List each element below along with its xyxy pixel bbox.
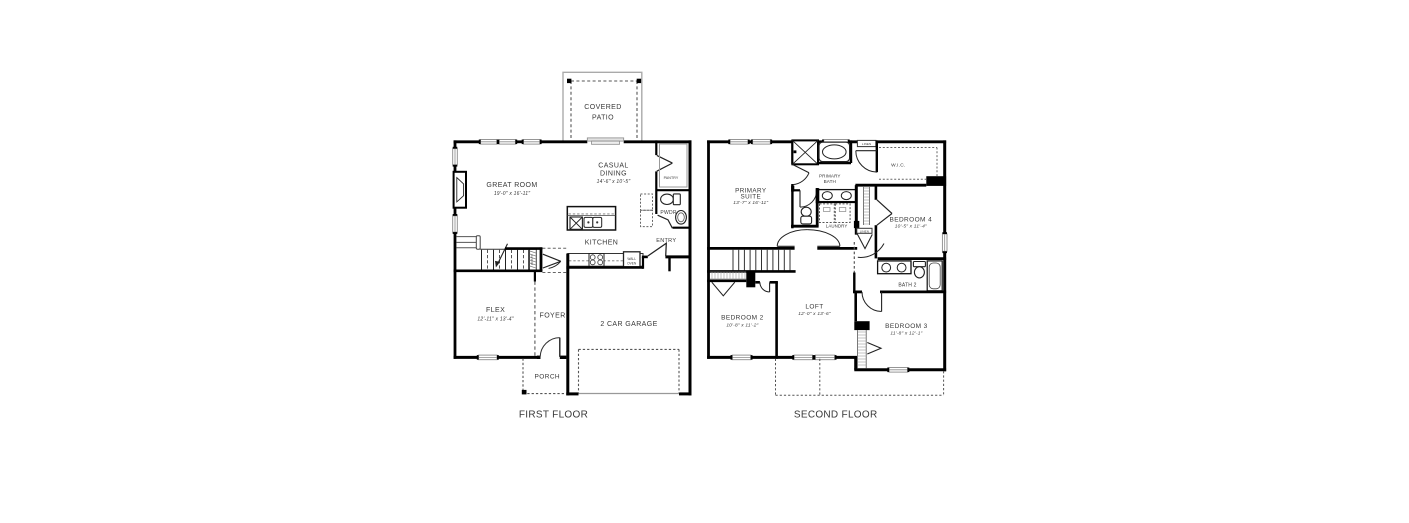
svg-text:FIRST FLOOR: FIRST FLOOR (519, 409, 588, 420)
svg-text:BATH 2: BATH 2 (898, 283, 916, 289)
svg-text:PORCH: PORCH (535, 373, 560, 380)
svg-text:GREAT ROOM: GREAT ROOM (486, 182, 537, 189)
svg-text:LAUNDRY: LAUNDRY (826, 224, 848, 229)
svg-text:11'-8" x 12'-1": 11'-8" x 12'-1" (890, 331, 922, 337)
svg-text:2 CAR GARAGE: 2 CAR GARAGE (600, 321, 657, 328)
svg-text:FOYER: FOYER (540, 313, 566, 320)
svg-text:LINEN: LINEN (862, 142, 871, 146)
svg-text:PATIO: PATIO (592, 114, 614, 121)
svg-text:DINING: DINING (600, 170, 627, 177)
svg-text:10'-8" x 11'-2": 10'-8" x 11'-2" (726, 322, 758, 328)
svg-text:LINEN: LINEN (860, 230, 869, 234)
svg-text:12'-0" x 13'-6": 12'-0" x 13'-6" (798, 311, 831, 317)
svg-text:OVEN: OVEN (627, 261, 637, 265)
svg-text:10'-5" x 11'-4": 10'-5" x 11'-4" (895, 223, 927, 229)
svg-text:LOFT: LOFT (805, 304, 823, 311)
svg-text:PRIMARY: PRIMARY (819, 173, 841, 178)
svg-text:WALL: WALL (627, 257, 636, 261)
svg-text:COATS: COATS (530, 254, 534, 265)
svg-text:12'-11" x 13'-4": 12'-11" x 13'-4" (477, 317, 513, 323)
svg-text:13'-7" x 16'-11": 13'-7" x 16'-11" (733, 200, 768, 206)
svg-text:14'-6" x 10'-5": 14'-6" x 10'-5" (597, 179, 631, 185)
svg-text:19'-0" x 16'-11": 19'-0" x 16'-11" (494, 191, 530, 197)
svg-text:BEDROOM 2: BEDROOM 2 (721, 315, 764, 322)
svg-text:W.I.C.: W.I.C. (891, 163, 905, 169)
svg-text:SUITE: SUITE (741, 193, 762, 200)
svg-text:SECOND FLOOR: SECOND FLOOR (794, 409, 878, 420)
svg-text:PANTRY: PANTRY (664, 176, 679, 180)
svg-text:PWDR: PWDR (660, 210, 677, 216)
svg-text:KITCHEN: KITCHEN (585, 239, 619, 246)
svg-text:FLEX: FLEX (486, 307, 505, 314)
svg-text:BEDROOM 4: BEDROOM 4 (889, 216, 932, 223)
svg-text:BATH: BATH (824, 179, 836, 184)
svg-text:COVERED: COVERED (584, 104, 621, 111)
svg-text:CASUAL: CASUAL (598, 162, 628, 169)
svg-text:BEDROOM 3: BEDROOM 3 (885, 323, 928, 330)
